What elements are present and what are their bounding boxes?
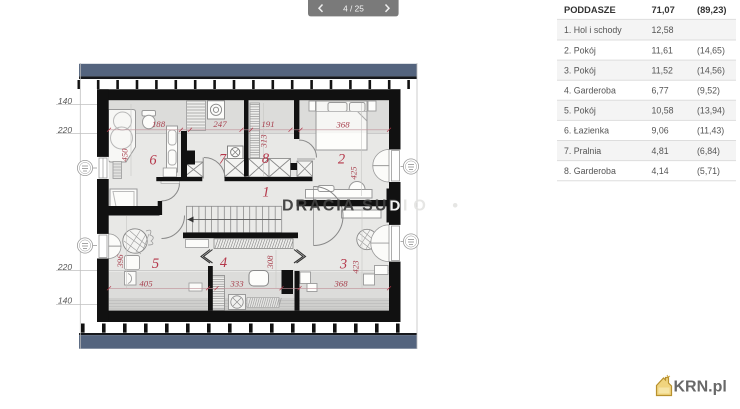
- svg-text:(9,52): (9,52): [697, 86, 720, 96]
- svg-text:396: 396: [115, 254, 125, 269]
- svg-text:308: 308: [265, 255, 275, 270]
- svg-text:8. Garderoba: 8. Garderoba: [564, 166, 616, 176]
- svg-text:(89,23): (89,23): [697, 5, 726, 15]
- svg-text:4: 4: [220, 255, 227, 271]
- svg-text:333: 333: [229, 279, 244, 289]
- svg-text:7: 7: [219, 152, 227, 168]
- svg-text:11,52: 11,52: [652, 65, 673, 75]
- svg-text:220: 220: [57, 262, 72, 272]
- svg-text:5. Pokój: 5. Pokój: [564, 106, 596, 116]
- svg-text:247: 247: [213, 119, 227, 129]
- svg-text:368: 368: [335, 120, 350, 130]
- svg-text:7. Pralnia: 7. Pralnia: [564, 146, 601, 156]
- svg-text:4. Garderoba: 4. Garderoba: [564, 86, 616, 96]
- svg-text:12,58: 12,58: [652, 25, 674, 35]
- svg-text:10,58: 10,58: [652, 106, 674, 116]
- svg-text:188: 188: [152, 119, 166, 129]
- svg-text:368: 368: [333, 279, 348, 289]
- svg-text:4,81: 4,81: [652, 146, 669, 156]
- svg-text:1: 1: [262, 185, 269, 201]
- svg-text:(14,56): (14,56): [697, 65, 725, 75]
- svg-text:191: 191: [261, 119, 274, 129]
- svg-text:11,61: 11,61: [652, 45, 673, 55]
- svg-text:(6,84): (6,84): [697, 146, 720, 156]
- svg-text:140: 140: [58, 296, 72, 306]
- svg-text:4 / 25: 4 / 25: [343, 3, 364, 13]
- svg-text:6,77: 6,77: [652, 86, 669, 96]
- svg-text:(14,65): (14,65): [697, 45, 725, 55]
- svg-text:(13,94): (13,94): [697, 106, 725, 116]
- svg-text:2: 2: [338, 152, 345, 168]
- svg-text:3. Pokój: 3. Pokój: [564, 65, 596, 75]
- svg-text:KRN.pl: KRN.pl: [674, 379, 727, 396]
- svg-text:PODDASZE: PODDASZE: [564, 5, 616, 15]
- svg-text:5: 5: [152, 256, 159, 272]
- svg-text:1. Hol i schody: 1. Hol i schody: [564, 25, 622, 35]
- svg-text:313: 313: [259, 134, 269, 149]
- svg-text:6. Łazienka: 6. Łazienka: [564, 126, 609, 136]
- svg-text:450: 450: [120, 148, 130, 162]
- svg-text:4,14: 4,14: [652, 166, 669, 176]
- svg-text:8: 8: [262, 151, 270, 167]
- svg-text:405: 405: [139, 279, 153, 289]
- svg-text:3: 3: [339, 256, 347, 272]
- svg-text:425: 425: [349, 166, 359, 180]
- svg-text:(5,71): (5,71): [697, 166, 720, 176]
- svg-text:71,07: 71,07: [652, 5, 675, 15]
- svg-text:9,06: 9,06: [652, 126, 669, 136]
- svg-text:D: D: [390, 198, 401, 215]
- svg-text:140: 140: [58, 96, 72, 106]
- svg-text:2. Pokój: 2. Pokój: [564, 45, 596, 55]
- svg-text:220: 220: [57, 125, 72, 135]
- svg-text:423: 423: [351, 260, 361, 274]
- svg-text:(11,43): (11,43): [697, 126, 724, 136]
- svg-text:6: 6: [149, 153, 157, 169]
